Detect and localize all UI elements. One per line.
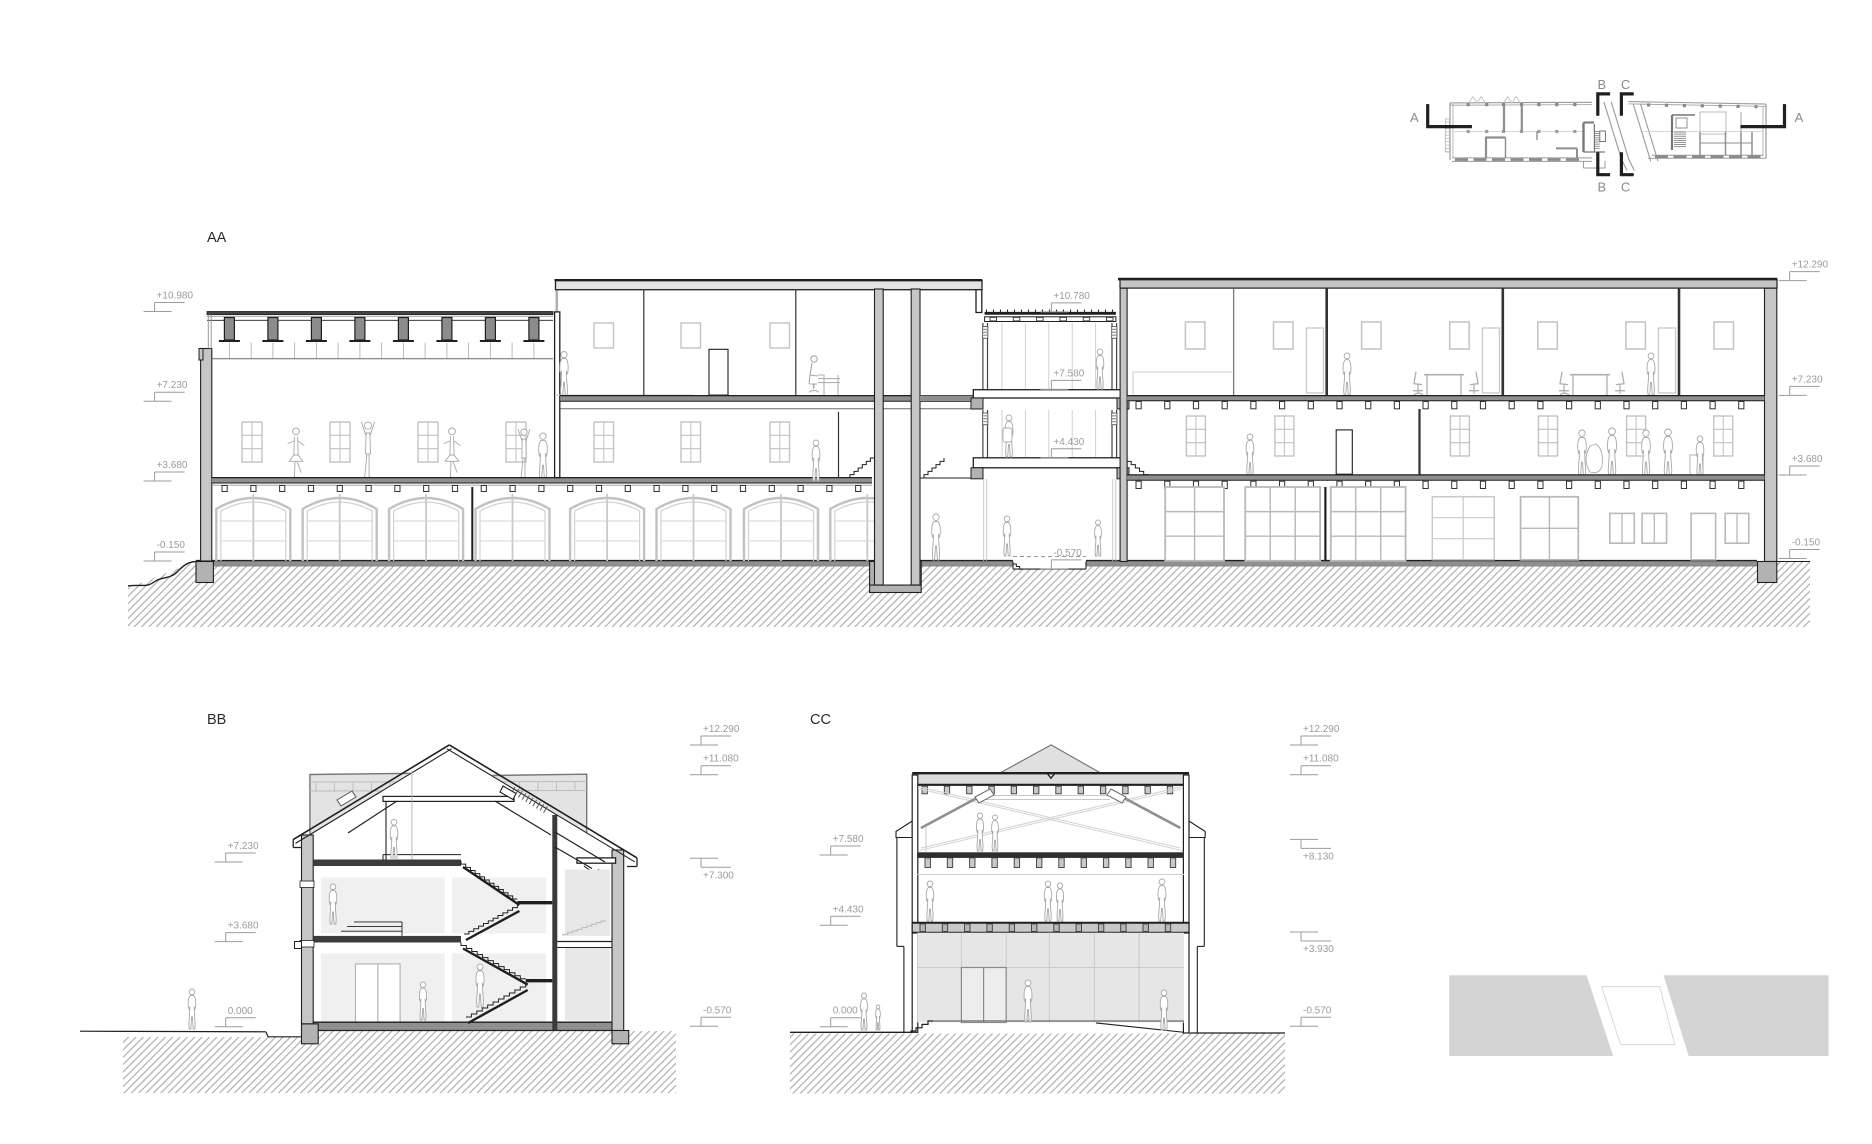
svg-text:+7.230: +7.230 [1792,374,1823,385]
svg-text:-0.570: -0.570 [1303,1005,1332,1016]
svg-text:C: C [1621,77,1630,92]
svg-text:B: B [1598,77,1607,92]
svg-text:A: A [1795,110,1804,125]
svg-text:+11.080: +11.080 [1303,754,1339,765]
svg-text:+7.230: +7.230 [228,841,259,852]
svg-text:+11.080: +11.080 [703,754,739,765]
svg-text:+10.980: +10.980 [157,291,194,302]
svg-text:+12.290: +12.290 [703,724,740,735]
svg-text:+7.300: +7.300 [703,870,734,881]
svg-text:-0.570: -0.570 [1053,548,1082,559]
svg-text:+12.290: +12.290 [1303,724,1340,735]
svg-text:AA: AA [207,230,227,246]
svg-text:-0.570: -0.570 [703,1005,732,1016]
svg-text:-0.150: -0.150 [1792,538,1821,549]
svg-text:+3.930: +3.930 [1303,944,1334,955]
svg-text:BB: BB [207,712,226,728]
svg-text:+7.230: +7.230 [157,380,188,391]
svg-text:CC: CC [810,712,831,728]
svg-text:+8.130: +8.130 [1303,851,1334,862]
svg-text:+4.430: +4.430 [833,904,864,915]
svg-text:0.000: 0.000 [228,1006,253,1017]
svg-text:+7.580: +7.580 [1053,368,1084,379]
svg-text:+4.430: +4.430 [1053,437,1084,448]
svg-text:+12.290: +12.290 [1792,260,1829,271]
svg-text:+3.680: +3.680 [228,921,259,932]
svg-text:A: A [1410,110,1419,125]
svg-text:-0.150: -0.150 [157,540,186,551]
svg-text:+10.780: +10.780 [1053,291,1090,302]
svg-text:+7.580: +7.580 [833,834,864,845]
svg-text:+3.680: +3.680 [157,460,188,471]
svg-text:B: B [1598,180,1607,195]
svg-text:0.000: 0.000 [833,1006,858,1017]
svg-text:C: C [1621,180,1630,195]
svg-text:+3.680: +3.680 [1792,454,1823,465]
